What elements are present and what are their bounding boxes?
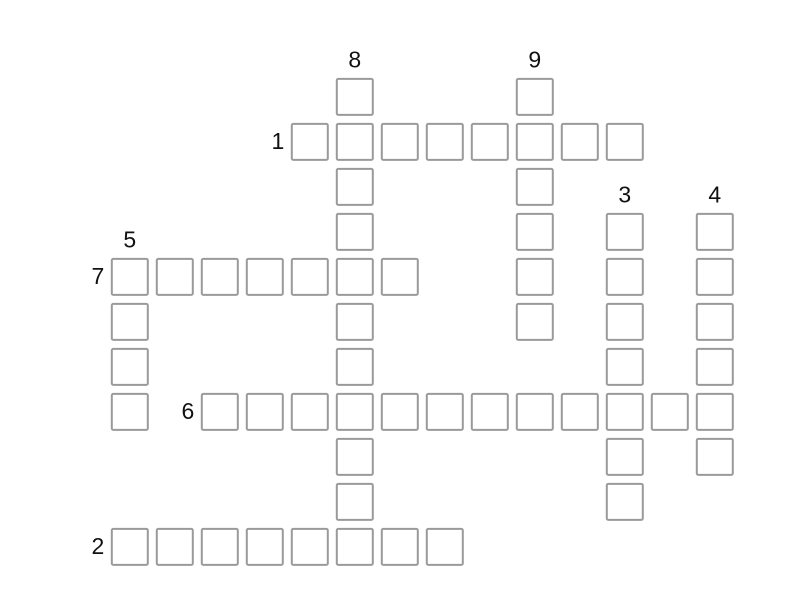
svg-text:9: 9 xyxy=(528,46,541,72)
svg-text:6: 6 xyxy=(182,398,195,424)
svg-text:8: 8 xyxy=(348,46,361,72)
svg-text:7: 7 xyxy=(92,263,105,289)
svg-text:2: 2 xyxy=(92,533,105,559)
svg-text:3: 3 xyxy=(618,181,631,207)
svg-text:4: 4 xyxy=(708,181,721,207)
svg-text:5: 5 xyxy=(123,226,136,252)
svg-text:1: 1 xyxy=(272,128,285,154)
